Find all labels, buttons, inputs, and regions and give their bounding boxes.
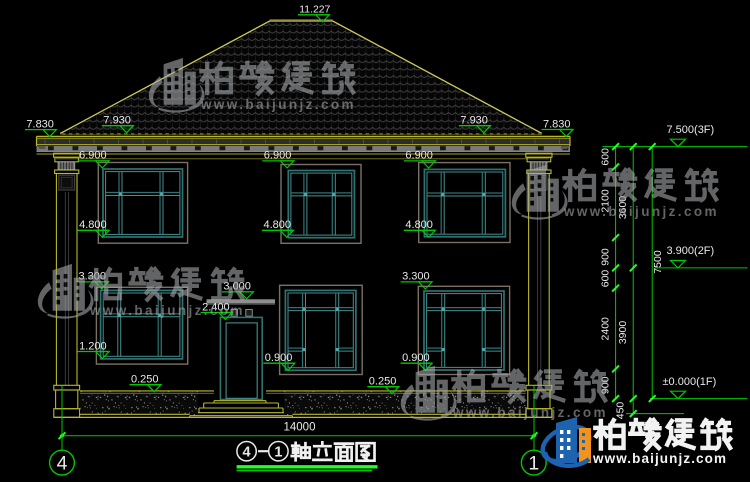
- svg-text:0.900: 0.900: [265, 352, 293, 364]
- svg-text:14000: 14000: [284, 421, 316, 433]
- svg-text:600: 600: [599, 148, 611, 166]
- svg-text:0.250: 0.250: [369, 376, 397, 388]
- svg-text:4.800: 4.800: [79, 219, 107, 231]
- svg-text:4.800: 4.800: [405, 219, 433, 231]
- svg-text:0.250: 0.250: [131, 374, 159, 386]
- svg-text:4: 4: [243, 444, 251, 460]
- svg-text:3.900(2F): 3.900(2F): [667, 245, 715, 257]
- svg-text:450: 450: [615, 402, 627, 420]
- svg-text:www.baijunjz.com: www.baijunjz.com: [89, 303, 245, 318]
- svg-text:0.900: 0.900: [402, 352, 430, 364]
- svg-text:11.227: 11.227: [299, 5, 330, 16]
- svg-text:www.baijunjz.com: www.baijunjz.com: [563, 204, 719, 219]
- svg-text:www.baijunjz.com: www.baijunjz.com: [200, 97, 356, 112]
- svg-text:3.300: 3.300: [402, 271, 430, 283]
- svg-text:2400: 2400: [599, 317, 611, 341]
- svg-text:900: 900: [599, 248, 611, 266]
- svg-text:1.200: 1.200: [79, 340, 107, 352]
- svg-text:7.830: 7.830: [26, 118, 54, 130]
- svg-text:4.800: 4.800: [264, 219, 292, 231]
- svg-text:6.900: 6.900: [79, 150, 107, 162]
- svg-text:±0.000(1F): ±0.000(1F): [663, 376, 717, 388]
- svg-text:7.930: 7.930: [103, 115, 131, 127]
- svg-text:6.900: 6.900: [405, 150, 433, 162]
- svg-text:www.baijunjz.com: www.baijunjz.com: [452, 405, 608, 420]
- svg-text:6.900: 6.900: [264, 150, 292, 162]
- svg-text:600: 600: [599, 270, 611, 288]
- svg-text:4: 4: [57, 452, 68, 474]
- svg-text:7.500(3F): 7.500(3F): [667, 124, 715, 136]
- svg-text:7.930: 7.930: [460, 115, 488, 127]
- svg-text:1: 1: [274, 444, 282, 460]
- svg-text:www.baijunjz.com: www.baijunjz.com: [592, 451, 727, 466]
- svg-text:7.830: 7.830: [543, 118, 571, 130]
- svg-text:7500: 7500: [652, 250, 664, 274]
- svg-text:3900: 3900: [617, 321, 629, 345]
- svg-text:1: 1: [528, 452, 539, 474]
